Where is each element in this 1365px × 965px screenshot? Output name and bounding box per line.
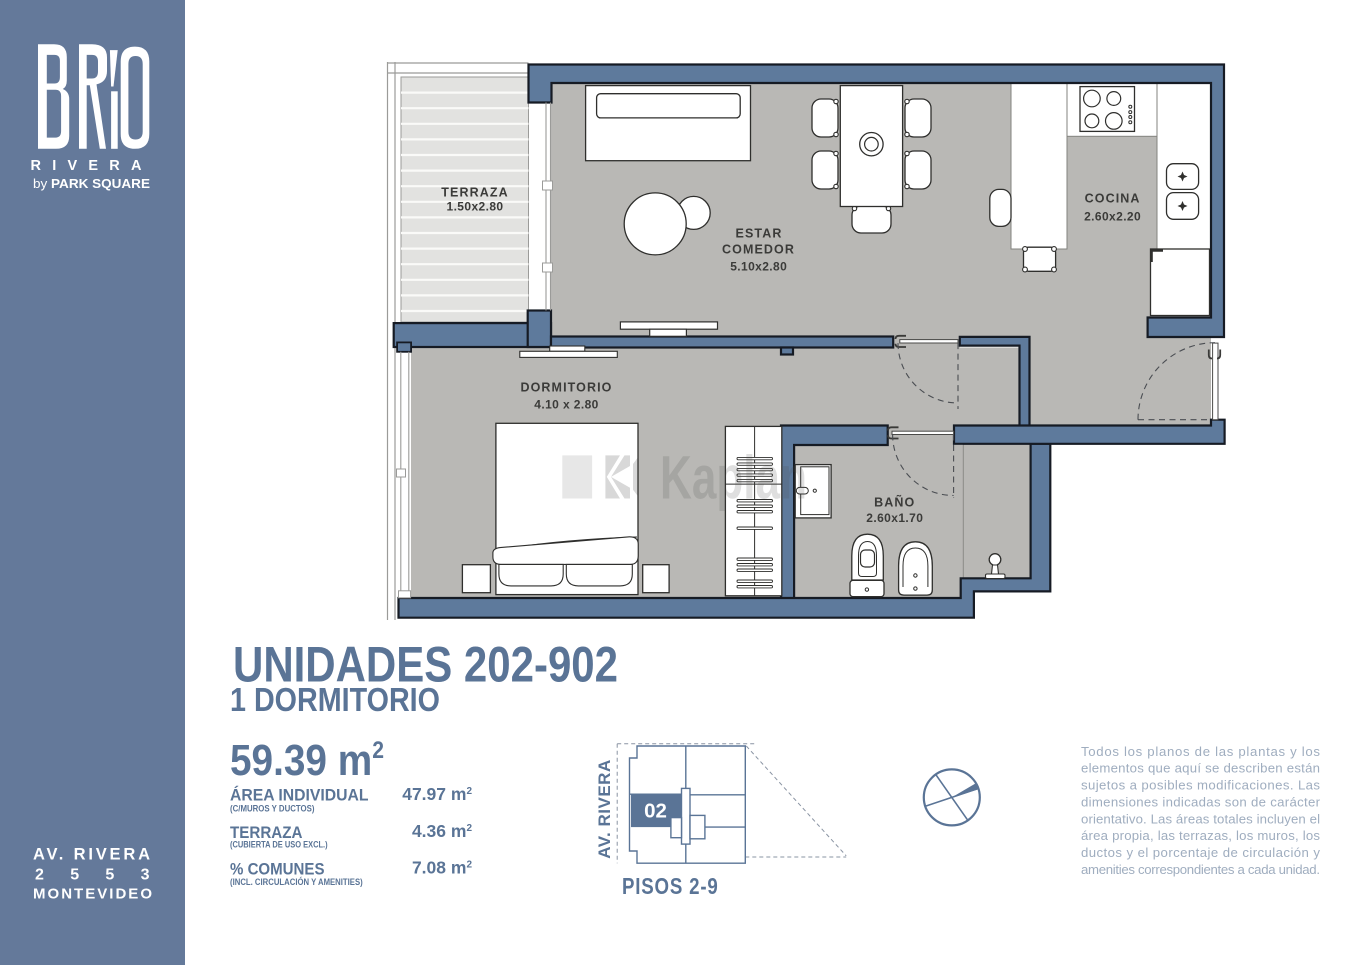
svg-text:1 DORMITORIO: 1 DORMITORIO: [230, 681, 440, 718]
svg-text:RIVERA: RIVERA: [31, 158, 155, 174]
svg-text:4.10 x 2.80: 4.10 x 2.80: [534, 398, 598, 412]
svg-text:(C/MUROS Y DUCTOS): (C/MUROS Y DUCTOS): [230, 804, 315, 815]
svg-text:59.39 m2: 59.39 m2: [230, 736, 384, 785]
svg-text:Todos los planos de las planta: Todos los planos de las plantas y los: [1081, 744, 1320, 759]
svg-text:MONTEVIDEO: MONTEVIDEO: [33, 886, 152, 903]
svg-text:AV. RIVERA: AV. RIVERA: [595, 759, 614, 858]
svg-text:DORMITORIO: DORMITORIO: [520, 381, 612, 395]
svg-text:5.10x2.80: 5.10x2.80: [730, 260, 787, 274]
svg-text:1.50x2.80: 1.50x2.80: [447, 200, 504, 214]
svg-text:47.97 m2: 47.97 m2: [402, 784, 472, 804]
svg-text:TERRAZA: TERRAZA: [441, 186, 508, 200]
svg-text:orientativo. Las áreas totales: orientativo. Las áreas totales incluyen …: [1081, 811, 1320, 826]
svg-text:02: 02: [644, 800, 667, 823]
svg-text:4.36 m2: 4.36 m2: [412, 821, 472, 841]
svg-text:2.60x1.70: 2.60x1.70: [866, 511, 923, 525]
svg-text:Kaplan: Kaplan: [660, 444, 807, 512]
svg-text:ÁREA INDIVIDUAL: ÁREA INDIVIDUAL: [230, 786, 369, 805]
svg-text:AV. RIVERA: AV. RIVERA: [33, 846, 150, 864]
svg-text:COMEDOR: COMEDOR: [722, 243, 795, 257]
svg-text:sujetos a posibles modificacio: sujetos a posibles modificaciones. Las: [1081, 778, 1320, 793]
svg-text:ductos y el porcentaje de circ: ductos y el porcentaje de circulación y: [1081, 845, 1320, 860]
svg-text:(CUBIERTA DE USO EXCL.): (CUBIERTA DE USO EXCL.): [230, 840, 328, 851]
svg-text:2.60x2.20: 2.60x2.20: [1084, 210, 1141, 224]
svg-text:COCINA: COCINA: [1085, 192, 1141, 206]
svg-text:BAÑO: BAÑO: [874, 495, 915, 510]
svg-text:7.08 m2: 7.08 m2: [412, 858, 472, 878]
svg-text:PISOS 2-9: PISOS 2-9: [622, 873, 719, 899]
svg-text:% COMUNES: % COMUNES: [230, 860, 325, 879]
svg-text:dimensiones indicadas son de c: dimensiones indicadas son de carácter: [1081, 794, 1321, 809]
svg-text:ESTAR: ESTAR: [736, 227, 783, 241]
svg-text:elementos que aquí se describe: elementos que aquí se describen están: [1081, 761, 1320, 776]
svg-text:(INCL. CIRCULACIÓN Y AMENITIES: (INCL. CIRCULACIÓN Y AMENITIES): [230, 876, 363, 888]
svg-text:2553: 2553: [35, 867, 176, 884]
svg-text:by PARK SQUARE: by PARK SQUARE: [33, 176, 150, 191]
svg-text:amenities correspondientes a c: amenities correspondientes a cada unidad…: [1081, 862, 1320, 877]
svg-text:área propia, las terrazas, los: área propia, las terrazas, los muros, lo…: [1081, 828, 1320, 843]
